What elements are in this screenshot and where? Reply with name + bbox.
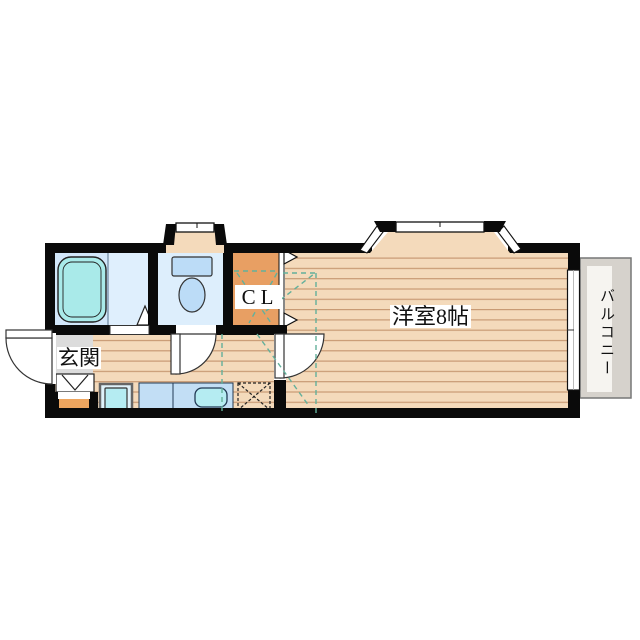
bathroom — [55, 253, 153, 325]
balcony-label: バルコニー — [589, 274, 613, 392]
kitchen-counter — [139, 383, 233, 412]
floor-plan-drawing — [0, 0, 640, 640]
bay-window — [360, 221, 521, 253]
closet-label: CL — [235, 285, 282, 309]
entrance-door — [6, 330, 56, 384]
balcony-sliding-window — [567, 270, 580, 390]
main-room-label: 洋室8帖 — [390, 305, 471, 328]
floor-plan: 玄関 CL 洋室8帖 バルコニー — [0, 0, 640, 640]
entrance-step — [56, 374, 94, 392]
toilet-room — [158, 253, 223, 325]
bathtub — [58, 257, 106, 322]
toilet-bay-window — [163, 223, 227, 253]
entrance-label: 玄関 — [57, 347, 101, 369]
main-room-floor — [285, 253, 568, 408]
bath-threshold — [110, 326, 149, 335]
